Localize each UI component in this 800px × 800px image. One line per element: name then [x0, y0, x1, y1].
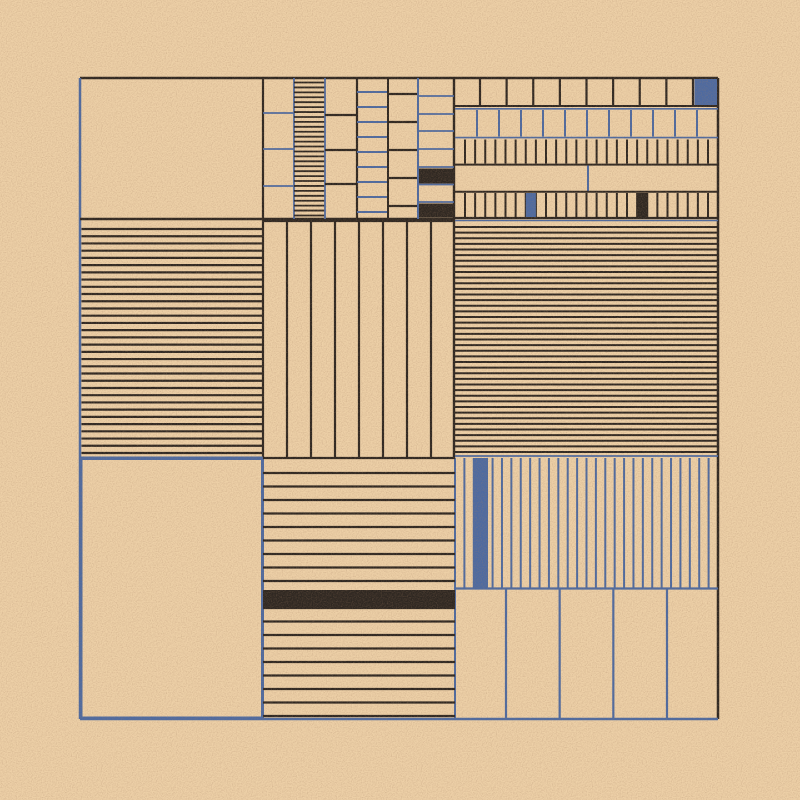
generative-artwork: [0, 0, 800, 800]
artwork-stage: [0, 0, 800, 800]
grain-texture-overlay: [0, 0, 800, 800]
